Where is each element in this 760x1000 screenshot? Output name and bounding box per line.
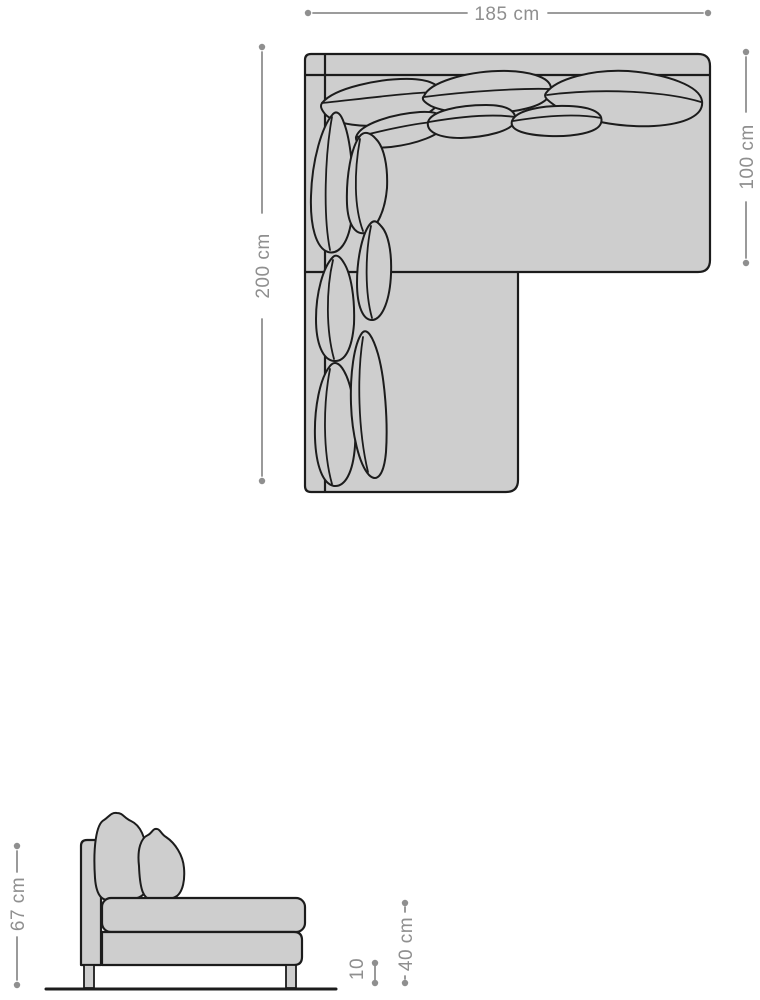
dim-endpoint — [305, 10, 311, 16]
sofa-dimension-diagram: 185 cm 100 cm 200 cm — [0, 0, 760, 1000]
dim-endpoint — [743, 49, 749, 55]
dim-depth-label: 100 cm — [737, 124, 758, 189]
dim-length-label: 200 cm — [253, 233, 274, 298]
left-cushion-column — [311, 112, 391, 486]
dim-endpoint — [402, 980, 408, 986]
dim-endpoint — [14, 843, 20, 849]
dim-endpoint — [259, 478, 265, 484]
dim-length: 200 cm — [253, 44, 274, 484]
sofa-leg — [84, 965, 94, 988]
dimension-diagram-page: 185 cm 100 cm 200 cm — [0, 0, 760, 1000]
dim-height: 67 cm — [8, 843, 29, 988]
dim-width: 185 cm — [305, 4, 711, 25]
dim-endpoint — [372, 980, 378, 986]
dim-endpoint — [705, 10, 711, 16]
front-pillow — [138, 829, 184, 900]
dim-depth: 100 cm — [737, 49, 758, 266]
dim-endpoint — [259, 44, 265, 50]
seat-cushion — [102, 898, 305, 932]
dim-leg-height-label: 10 — [347, 958, 368, 980]
dim-seat-height: 40 cm — [396, 900, 417, 986]
sofa-top-view: 185 cm 100 cm 200 cm — [253, 4, 758, 492]
dim-height-label: 67 cm — [8, 877, 29, 931]
dim-endpoint — [14, 982, 20, 988]
cushion — [315, 363, 356, 486]
base-frame — [102, 932, 302, 965]
dim-seat-height-label: 40 cm — [396, 917, 417, 971]
cushion — [512, 106, 602, 136]
dim-endpoint — [402, 900, 408, 906]
sofa-leg — [286, 965, 296, 988]
sofa-side-view: 67 cm 40 cm 10 — [8, 813, 417, 989]
dim-leg-height: 10 — [347, 958, 378, 986]
dim-endpoint — [743, 260, 749, 266]
dim-width-label: 185 cm — [474, 4, 539, 25]
